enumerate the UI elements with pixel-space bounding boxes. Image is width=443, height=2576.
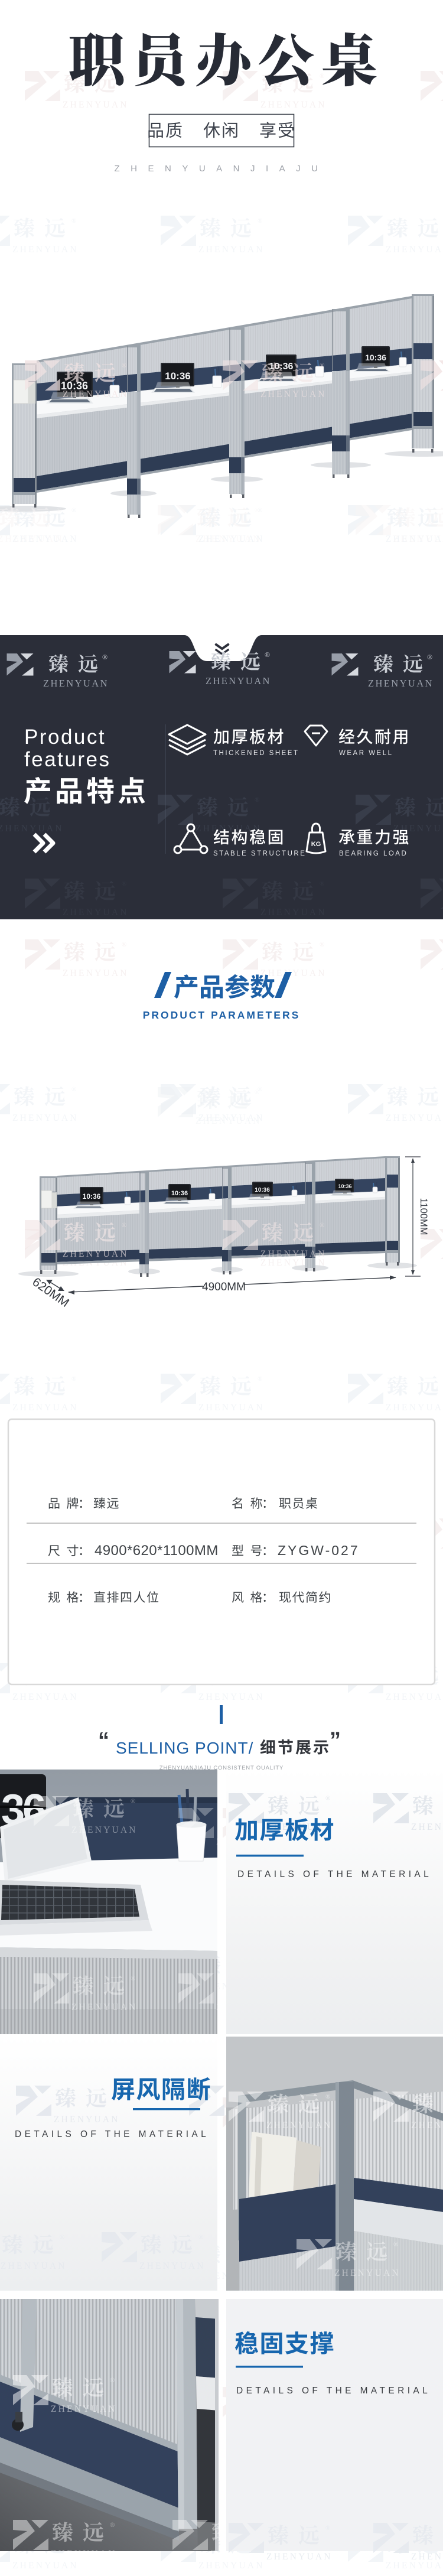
svg-text:ZHENYUANJIAJU: ZHENYUANJIAJU bbox=[114, 164, 328, 174]
svg-text:ZHENYUAN: ZHENYUAN bbox=[368, 678, 434, 689]
svg-text:10:36: 10:36 bbox=[171, 1190, 188, 1197]
svg-text:DETAILS OF THE MATERIAL: DETAILS OF THE MATERIAL bbox=[237, 1869, 432, 1879]
svg-text:10:36: 10:36 bbox=[255, 1187, 270, 1193]
svg-text:ZHENYUAN: ZHENYUAN bbox=[43, 678, 109, 689]
svg-text:features: features bbox=[24, 748, 110, 771]
svg-text:Product: Product bbox=[24, 726, 106, 749]
svg-text:®: ® bbox=[265, 650, 270, 659]
svg-text:”: ” bbox=[330, 1728, 341, 1753]
svg-text:WEAR WELL: WEAR WELL bbox=[339, 750, 393, 757]
svg-text:DETAILS OF THE MATERIAL: DETAILS OF THE MATERIAL bbox=[15, 2129, 209, 2139]
svg-text:®: ® bbox=[427, 653, 432, 661]
svg-text:DETAILS OF THE MATERIAL: DETAILS OF THE MATERIAL bbox=[236, 2386, 431, 2396]
svg-text:KG: KG bbox=[311, 841, 321, 848]
svg-text:ZYGW-027: ZYGW-027 bbox=[278, 1543, 360, 1558]
svg-text:SELLING POINT/: SELLING POINT/ bbox=[116, 1739, 253, 1757]
svg-text:10:36: 10:36 bbox=[365, 353, 386, 362]
svg-text:1100MM: 1100MM bbox=[418, 1198, 429, 1235]
svg-text:STABLE STRUCTURE: STABLE STRUCTURE bbox=[213, 850, 306, 857]
svg-text:BEARING LOAD: BEARING LOAD bbox=[339, 850, 408, 857]
svg-text:ZHENYUAN: ZHENYUAN bbox=[206, 675, 271, 687]
svg-text:4900MM: 4900MM bbox=[202, 1281, 246, 1293]
svg-text:®: ® bbox=[102, 653, 108, 661]
svg-text:10:36: 10:36 bbox=[165, 370, 190, 382]
svg-text:PRODUCT PARAMETERS: PRODUCT PARAMETERS bbox=[143, 1009, 301, 1021]
svg-text:10:36: 10:36 bbox=[83, 1192, 101, 1201]
svg-text:10:36: 10:36 bbox=[338, 1183, 351, 1189]
svg-text:THICKENED SHEET: THICKENED SHEET bbox=[213, 750, 299, 757]
svg-text:4900*620*1100MM: 4900*620*1100MM bbox=[95, 1543, 219, 1559]
svg-text:“: “ bbox=[98, 1728, 109, 1753]
